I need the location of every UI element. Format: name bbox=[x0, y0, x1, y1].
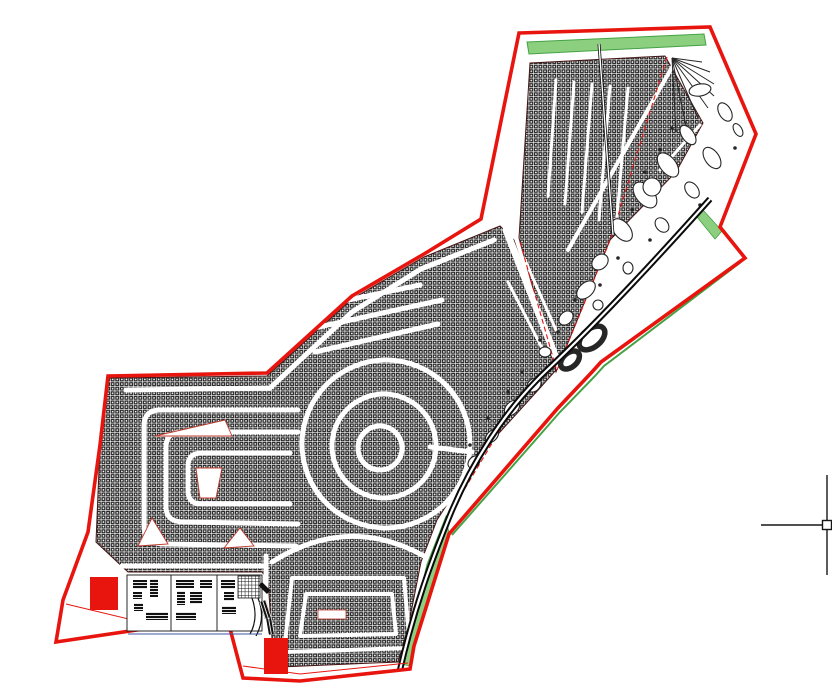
pentagon-center-plot bbox=[318, 610, 346, 619]
parking-grid-block bbox=[238, 576, 260, 598]
pickbox bbox=[823, 521, 832, 530]
crosshair-cursor bbox=[761, 475, 832, 575]
red-parcel-west bbox=[90, 577, 118, 610]
road-exit-green-sliver bbox=[697, 210, 722, 239]
cad-canvas[interactable] bbox=[0, 0, 832, 690]
public-building-cluster bbox=[90, 575, 288, 674]
cad-viewport[interactable] bbox=[0, 0, 832, 690]
north-green-strip bbox=[527, 34, 706, 54]
red-parcel-south bbox=[264, 638, 288, 674]
